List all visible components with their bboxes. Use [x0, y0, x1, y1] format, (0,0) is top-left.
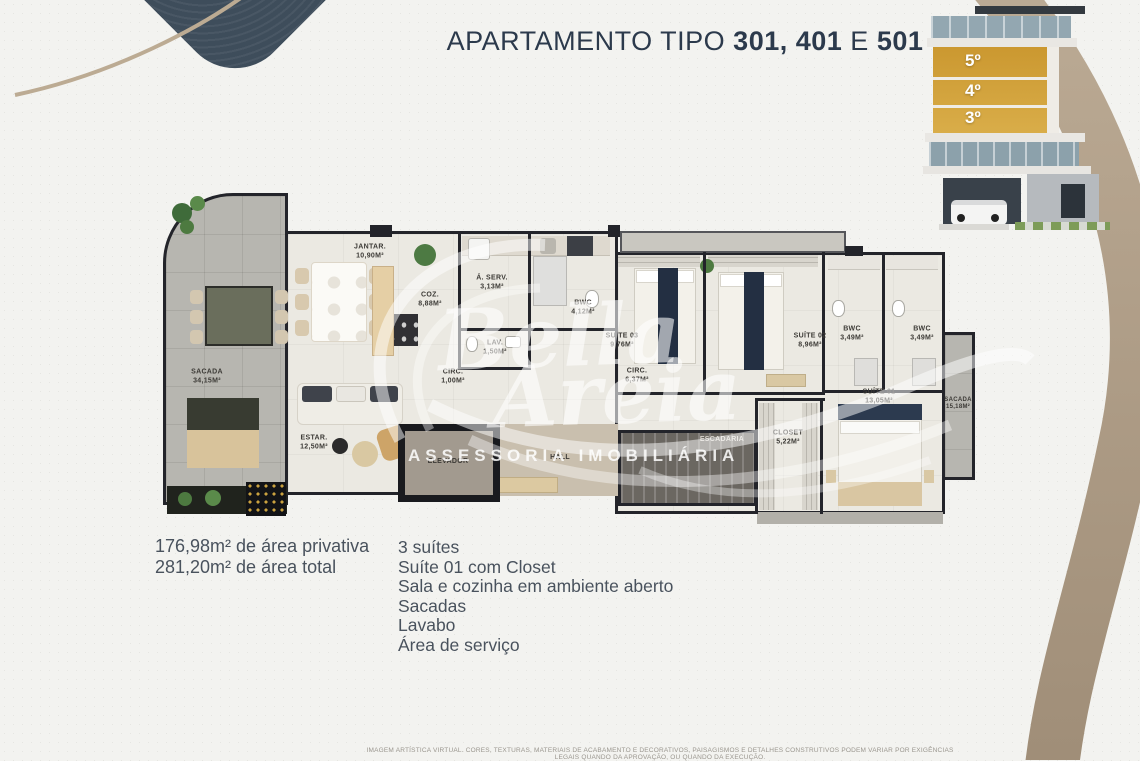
wall — [882, 252, 885, 390]
kitchen-sink — [540, 238, 556, 254]
balcony-bench-base — [187, 430, 259, 468]
total-area-text: 281,20m² de área total — [155, 557, 369, 578]
kitchen-appliance — [567, 236, 593, 256]
feature-item: 3 suítes — [398, 538, 673, 558]
building-roof-rail — [975, 6, 1085, 14]
dining-table — [311, 262, 367, 342]
building-side-edge — [1047, 47, 1059, 133]
room-label-closet: CLOSET5,22m² — [773, 430, 803, 447]
wall — [755, 398, 758, 514]
room-label-sacada-right: SACADA15,18m² — [944, 397, 971, 411]
column — [845, 246, 863, 256]
bwc2-toilet — [892, 300, 905, 317]
balcony-plant — [180, 220, 194, 234]
kitchen-island — [372, 266, 394, 356]
feature-item: Sacadas — [398, 597, 673, 617]
wall — [458, 328, 461, 370]
building-gold-slab-2 — [933, 105, 1047, 108]
washer — [468, 238, 490, 260]
wall — [528, 328, 531, 370]
sofa-cushion — [370, 386, 398, 402]
coffee-table — [352, 441, 378, 467]
building-gold-facade — [933, 47, 1047, 133]
planter-plant — [178, 492, 192, 506]
title-regular-1: APARTAMENTO TIPO — [447, 26, 726, 56]
room-label-estar: ESTAR.12,50m² — [300, 435, 328, 452]
wall — [820, 398, 823, 514]
side-table — [332, 438, 348, 454]
bwc1-toilet — [832, 300, 845, 317]
balcony-bench — [187, 398, 259, 430]
room-label-suite-01: SUÍTE 0113,05m² — [863, 389, 896, 406]
room-label-suite-03: SUÍTE 039,76m² — [606, 333, 639, 350]
sofa-cushion — [336, 386, 366, 402]
dining-chair — [295, 320, 309, 336]
room-label-bwc-1: BWC3,49m² — [840, 326, 864, 343]
bwc2-shower — [912, 358, 936, 386]
feature-item: Sala e cozinha em ambiente aberto — [398, 577, 673, 597]
building-gold-slab-1 — [933, 77, 1047, 80]
room-label-circ-2: CIRC.6,37m² — [625, 368, 649, 385]
cooktop — [394, 314, 418, 346]
building-slab-mid — [925, 133, 1085, 142]
balcony-plant — [190, 196, 205, 211]
car-wheel-left — [957, 214, 965, 222]
nightstand — [826, 470, 836, 483]
bwc1-counter — [828, 256, 880, 270]
room-label-aserv: Á. SERV.3,13m² — [476, 275, 508, 292]
wardrobe-suite-03 — [618, 255, 700, 267]
wall — [458, 367, 531, 370]
features-list: 3 suítes Suíte 01 com Closet Sala e cozi… — [398, 538, 673, 655]
wine-cabinet — [246, 482, 286, 516]
lav-sink — [505, 336, 521, 348]
floor-label-4: 4º — [965, 81, 981, 101]
floor-label-5: 5º — [965, 51, 981, 71]
wall — [615, 392, 825, 395]
room-label-sacada-left: SACADA34,15m² — [191, 369, 223, 386]
balcony-chair — [190, 310, 203, 324]
building-mid-glass — [929, 142, 1079, 166]
wall — [528, 231, 531, 331]
room-label-bwc-social: BWC4,12m² — [571, 300, 595, 317]
building-slab-low — [923, 166, 1091, 174]
balcony-chair — [275, 290, 288, 304]
building-top-glass — [931, 16, 1071, 38]
room-label-hall: HALL — [550, 454, 570, 463]
room-label-lav: LAV.1,50m² — [483, 340, 507, 357]
sofa-cushion — [302, 386, 332, 402]
bed-suite-03-throw — [658, 268, 678, 364]
wall — [458, 231, 461, 331]
balcony-chair — [275, 330, 288, 344]
title-bold-2: 501 — [877, 26, 924, 56]
lav-toilet — [466, 336, 478, 352]
wall — [703, 252, 706, 392]
dining-chair — [295, 294, 309, 310]
balcony-chair — [190, 330, 203, 344]
planter-plant — [205, 490, 221, 506]
wall — [458, 328, 615, 331]
balcony-chair — [275, 310, 288, 324]
feature-item: Suíte 01 com Closet — [398, 558, 673, 578]
feature-item: Área de serviço — [398, 636, 673, 656]
bwc2-counter — [886, 256, 938, 270]
building-rendering: 5º 4º 3º — [915, 2, 1135, 230]
wall — [755, 398, 825, 401]
car-wheel-right — [991, 214, 999, 222]
room-label-jantar: JANTAR.10,90m² — [354, 244, 386, 261]
balcony-chair — [190, 290, 203, 304]
driveway — [939, 224, 1009, 230]
balcony-dining-table — [205, 286, 273, 346]
column — [370, 225, 392, 237]
feature-item: Lavabo — [398, 616, 673, 636]
building-entry-door — [1061, 184, 1085, 218]
building-slab-top — [927, 38, 1077, 47]
private-area-text: 176,98m² de área privativa — [155, 536, 369, 557]
indoor-plant — [414, 244, 436, 266]
nightstand — [924, 470, 934, 483]
room-label-bwc-2: BWC3,49m² — [910, 326, 934, 343]
page-title: APARTAMENTO TIPO 301, 401 E 501 — [435, 26, 935, 57]
bwc-shower — [533, 256, 567, 306]
poster: APARTAMENTO TIPO 301, 401 E 501 5º 4º 3º — [0, 0, 1140, 760]
area-specs: 176,98m² de área privativa 281,20m² de á… — [155, 536, 369, 578]
room-label-suite-02: SUÍTE 028,96m² — [794, 333, 827, 350]
upper-ledge — [620, 231, 846, 253]
bottom-walkway — [757, 512, 943, 524]
bed-suite-02-throw — [744, 272, 764, 370]
dining-chair — [295, 268, 309, 284]
floor-label-3: 3º — [965, 108, 981, 128]
bed-suite-01-blanket — [838, 482, 922, 506]
room-label-elevador: ELEVADOR — [428, 458, 469, 467]
bed-suite-01-headboard — [838, 404, 922, 420]
title-regular-2: E — [850, 26, 869, 56]
wardrobe-suite-02 — [708, 255, 818, 267]
column — [608, 225, 620, 237]
room-label-circ-1: CIRC.1,00m² — [441, 369, 465, 386]
disclaimer-text: IMAGEM ARTÍSTICA VIRTUAL. CORES, TEXTURA… — [365, 747, 955, 761]
closet-shelf — [759, 403, 775, 510]
closet-shelf — [802, 403, 818, 510]
room-label-coz: COZ.8,88m² — [418, 292, 442, 309]
lawn-stripes — [1015, 222, 1110, 230]
wall — [822, 252, 825, 392]
bwc1-shower — [854, 358, 878, 386]
title-bold-1: 301, 401 — [733, 26, 842, 56]
bed-suite-01-pillows — [840, 421, 920, 434]
room-label-escadaria: ESCADARIA — [700, 436, 744, 445]
corridor-console — [766, 374, 806, 387]
